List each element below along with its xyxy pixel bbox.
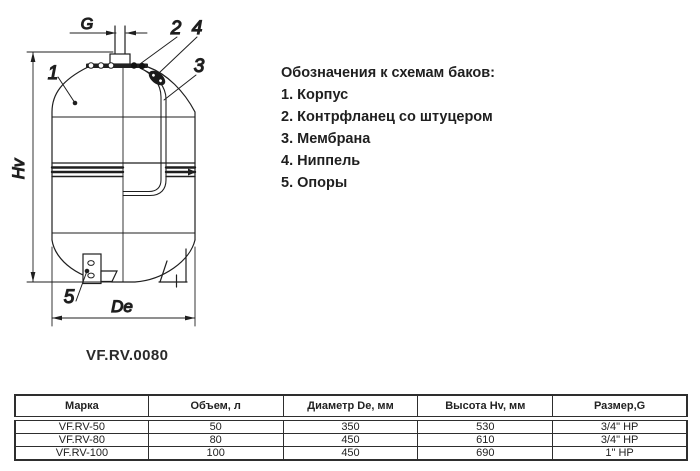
cell-size: 1" НР xyxy=(553,447,688,461)
position-number-2: 2 xyxy=(170,18,182,39)
cell-volume: 50 xyxy=(149,420,284,434)
col-header-size: Размер,G xyxy=(553,394,688,417)
col-header-height: Высота Hv, мм xyxy=(418,394,553,417)
tank-technical-drawing: Hv De G 1 2 4 3 xyxy=(0,0,270,345)
de-dimension-label: De xyxy=(111,297,133,316)
table-row: VF.RV-80 80 450 610 3/4" НР xyxy=(14,434,688,447)
g-dimension-label: G xyxy=(81,16,93,33)
position-number-5: 5 xyxy=(64,287,75,308)
legend-item-2: 2. Контрфланец со штуцером xyxy=(281,106,681,128)
cell-diameter: 350 xyxy=(284,420,419,434)
legend-item-5: 5. Опоры xyxy=(281,172,681,194)
spec-table-header-row: Марка Объем, л Диаметр De, мм Высота Hv,… xyxy=(14,394,688,417)
hv-dimension-label: Hv xyxy=(10,157,28,179)
cell-height: 530 xyxy=(418,420,553,434)
position-number-3: 3 xyxy=(194,56,205,77)
legend-title: Обозначения к схемам баков: xyxy=(281,62,681,84)
cell-marka: VF.RV-100 xyxy=(14,447,149,461)
col-header-diameter: Диаметр De, мм xyxy=(284,394,419,417)
table-row: VF.RV-50 50 350 530 3/4" НР xyxy=(14,420,688,434)
table-row: VF.RV-100 100 450 690 1" НР xyxy=(14,447,688,461)
drawing-model-label: VF.RV.0080 xyxy=(86,347,168,364)
weld-seam-lines xyxy=(52,117,196,233)
cell-size: 3/4" НР xyxy=(553,434,688,447)
position-number-4: 4 xyxy=(192,18,203,39)
spec-table: Марка Объем, л Диаметр De, мм Высота Hv,… xyxy=(14,394,688,461)
cell-height: 690 xyxy=(418,447,553,461)
col-header-volume: Объем, л xyxy=(149,394,284,417)
cell-volume: 100 xyxy=(149,447,284,461)
cell-volume: 80 xyxy=(149,434,284,447)
cell-height: 610 xyxy=(418,434,553,447)
support-legs xyxy=(83,249,187,287)
leader-lines xyxy=(58,37,197,301)
cell-marka: VF.RV-50 xyxy=(14,420,149,434)
cell-size: 3/4" НР xyxy=(553,420,688,434)
membrane-outline xyxy=(123,68,166,196)
cell-diameter: 450 xyxy=(284,447,419,461)
spec-table-container: Марка Объем, л Диаметр De, мм Высота Hv,… xyxy=(14,394,688,461)
legend: Обозначения к схемам баков: 1. Корпус 2.… xyxy=(281,62,681,194)
cell-marka: VF.RV-80 xyxy=(14,434,149,447)
cell-diameter: 450 xyxy=(284,434,419,447)
legend-item-3: 3. Мембрана xyxy=(281,128,681,150)
counterflange-assembly xyxy=(86,26,148,69)
legend-item-1: 1. Корпус xyxy=(281,84,681,106)
legend-item-4: 4. Ниппель xyxy=(281,150,681,172)
position-number-1: 1 xyxy=(48,63,59,84)
tank-body-outline xyxy=(52,67,195,282)
page: Hv De G 1 2 4 3 xyxy=(0,0,700,471)
col-header-marka: Марка xyxy=(14,394,149,417)
